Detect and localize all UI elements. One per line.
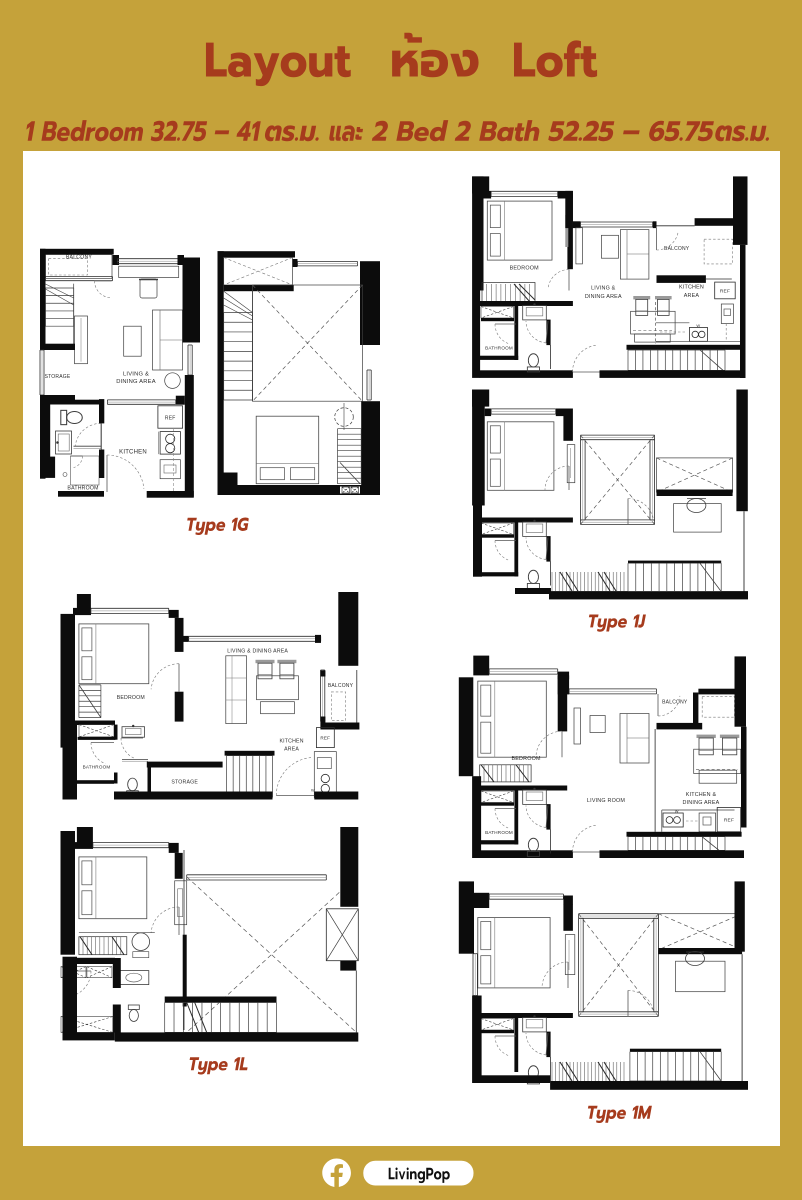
svg-text:BALCONY: BALCONY (662, 699, 688, 705)
svg-text:DINING AREA: DINING AREA (116, 379, 156, 385)
svg-text:LIVING &: LIVING & (123, 372, 149, 378)
svg-text:BATHROOM: BATHROOM (485, 830, 513, 835)
svg-text:BALCONY: BALCONY (66, 255, 93, 261)
svg-text:DINING AREA: DINING AREA (683, 800, 720, 806)
svg-text:KITCHEN: KITCHEN (280, 739, 304, 745)
svg-text:BATHROOM: BATHROOM (485, 346, 513, 351)
svg-text:W: W (696, 323, 700, 328)
svg-text:BATHROOM: BATHROOM (67, 486, 98, 492)
svg-text:AREA: AREA (284, 746, 299, 752)
svg-text:AREA: AREA (684, 293, 700, 299)
svg-text:REF: REF (320, 736, 330, 741)
svg-text:BEDROOM: BEDROOM (510, 266, 540, 272)
svg-text:STORAGE: STORAGE (45, 374, 71, 380)
svg-text:DINING AREA: DINING AREA (585, 294, 622, 300)
svg-text:KITCHEN: KITCHEN (119, 450, 147, 456)
svg-text:REF: REF (165, 416, 176, 422)
svg-text:W: W (675, 809, 679, 814)
svg-text:REF: REF (724, 818, 734, 824)
svg-text:STORAGE: STORAGE (171, 780, 198, 786)
svg-text:LIVING & DINING AREA: LIVING & DINING AREA (227, 649, 288, 655)
svg-text:BALCONY: BALCONY (328, 683, 354, 689)
svg-text:KITCHEN &: KITCHEN & (686, 792, 717, 798)
svg-text:KITCHEN: KITCHEN (679, 285, 704, 291)
svg-text:REF: REF (720, 288, 730, 294)
svg-text:BALCONY: BALCONY (664, 246, 690, 252)
svg-text:LIVING &: LIVING & (591, 285, 616, 291)
svg-text:BEDROOM: BEDROOM (511, 756, 541, 762)
svg-text:LIVING ROOM: LIVING ROOM (587, 798, 625, 804)
svg-text:BATHROOM: BATHROOM (83, 765, 111, 770)
svg-text:BEDROOM: BEDROOM (117, 695, 145, 701)
